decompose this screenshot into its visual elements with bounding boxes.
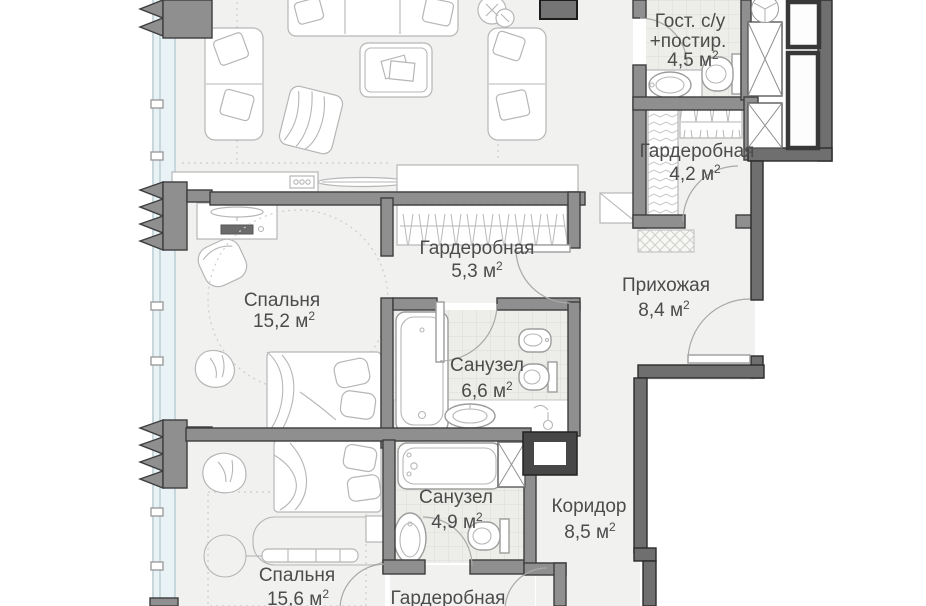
riser-box-1	[788, 2, 819, 47]
bathtub-2	[398, 443, 501, 489]
coffee-table	[360, 43, 432, 97]
label-bathroom-2: Санузел	[419, 487, 493, 508]
area-wardrobe-master: 5,3 м2	[451, 259, 503, 282]
vent-shaft-1	[748, 22, 782, 96]
area-bedroom-2: 15,6 м2	[267, 587, 329, 606]
sofa-left	[205, 28, 263, 140]
label-corridor: Коридор	[551, 496, 626, 517]
entrance-door-leaf	[688, 355, 750, 363]
column	[540, 0, 577, 19]
label-bedroom-2: Спальня	[259, 565, 335, 586]
area-corridor: 8,5 м2	[564, 520, 616, 543]
sofa-right	[488, 28, 546, 140]
beanbag-bedroom-1	[195, 351, 234, 388]
hallway-cabinet	[600, 193, 637, 223]
label-bathroom-1: Санузел	[450, 355, 524, 376]
label-wardrobe-bottom: Гардеробная	[391, 588, 506, 606]
bed-1	[267, 352, 381, 430]
vent-shaft-3	[498, 442, 525, 487]
floor-plan-canvas: Гост. с/у +постир. 4,5 м2 Гардеробная 4,…	[0, 0, 926, 606]
riser-box-2	[788, 53, 818, 148]
area-bathroom-1: 6,6 м2	[461, 379, 513, 402]
doormat	[638, 230, 694, 252]
door-leaf-bathroom-1	[436, 302, 444, 362]
label-hallway: Прихожая	[622, 275, 710, 296]
label-wardrobe-master: Гардеробная	[420, 238, 535, 259]
area-bedroom-1: 15,2 м2	[253, 309, 315, 332]
area-guest-wc: 4,5 м2	[667, 48, 719, 71]
utility-box	[523, 432, 577, 475]
label-guest-wc-line1: Гост. с/у	[655, 11, 726, 32]
area-hallway: 8,4 м2	[638, 298, 690, 321]
area-wardrobe-top: 4,2 м2	[669, 162, 721, 185]
closet-hangers-wardrobe-top	[680, 106, 742, 138]
bidet	[519, 329, 551, 352]
facade-window-wall	[151, 0, 176, 606]
desk	[197, 203, 277, 239]
floor-plan-svg: Гост. с/у +постир. 4,5 м2 Гардеробная 4,…	[0, 0, 926, 606]
closet-living-side	[397, 165, 578, 192]
label-bedroom-1: Спальня	[244, 290, 320, 311]
area-bathroom-2: 4,9 м2	[431, 510, 483, 533]
bed-2	[274, 440, 382, 512]
ventilation-fan-icon	[752, 0, 779, 23]
sofa-top	[288, 0, 458, 36]
sink-bathroom-2	[394, 513, 426, 563]
label-wardrobe-top: Гардеробная	[640, 141, 755, 162]
sink-guest-wc	[649, 72, 691, 98]
toilet-bathroom-1	[519, 362, 557, 392]
sink-bathroom-1	[445, 403, 495, 428]
